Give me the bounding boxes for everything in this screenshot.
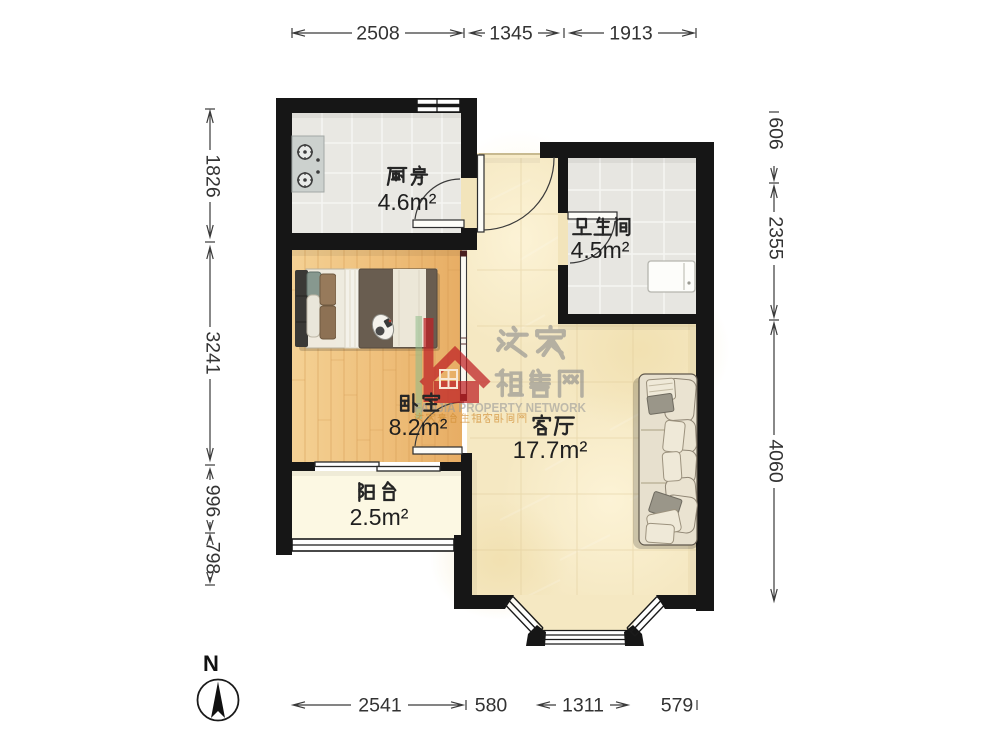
- svg-text:N: N: [203, 651, 219, 676]
- svg-text:8.2m²: 8.2m²: [389, 414, 448, 440]
- svg-text:580: 580: [475, 695, 508, 717]
- svg-text:2.5m²: 2.5m²: [350, 504, 409, 530]
- svg-text:1311: 1311: [562, 695, 604, 717]
- svg-text:4.6m²: 4.6m²: [378, 189, 437, 215]
- svg-text:2355: 2355: [765, 216, 787, 260]
- svg-text:1826: 1826: [202, 154, 224, 197]
- svg-text:2508: 2508: [356, 23, 399, 45]
- svg-text:798: 798: [202, 542, 224, 575]
- svg-text:4060: 4060: [765, 439, 787, 483]
- svg-text:1913: 1913: [609, 23, 652, 45]
- svg-text:579: 579: [661, 695, 694, 717]
- svg-text:17.7m²: 17.7m²: [513, 437, 588, 464]
- svg-text:2541: 2541: [358, 695, 401, 717]
- svg-text:4.5m²: 4.5m²: [571, 237, 630, 263]
- svg-text:996: 996: [202, 485, 224, 518]
- svg-text:1345: 1345: [489, 23, 533, 45]
- svg-text:606: 606: [765, 117, 787, 150]
- svg-text:FANJIA PROPERTY NETWORK: FANJIA PROPERTY NETWORK: [414, 400, 587, 415]
- svg-text:3241: 3241: [202, 331, 224, 374]
